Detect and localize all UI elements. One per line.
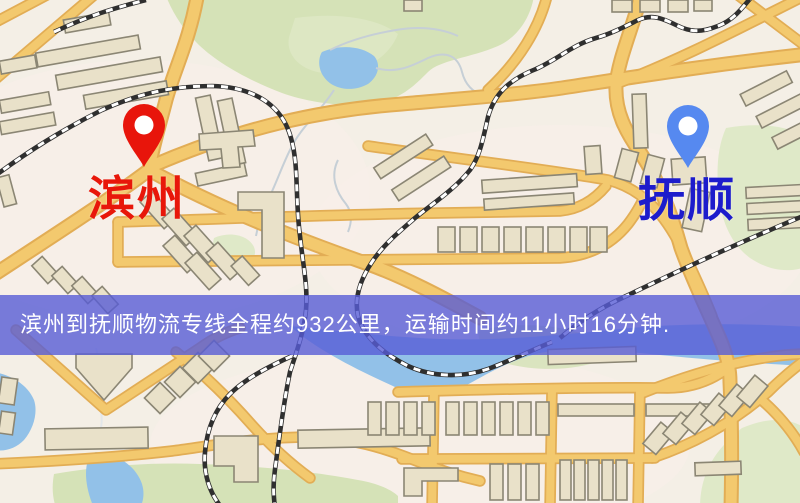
origin-city-label: 滨州 [88, 175, 186, 222]
origin-pin-icon[interactable] [120, 99, 168, 171]
destination-pin-hole [679, 117, 698, 136]
map-canvas[interactable]: 滨州 抚顺 滨州到抚顺物流专线全程约932公里，运输时间约11小时16分钟. [0, 0, 800, 503]
destination-pin-icon[interactable] [664, 100, 712, 172]
origin-pin-hole [135, 116, 154, 135]
origin-pin-body [123, 104, 165, 167]
destination-pin-body [667, 105, 709, 168]
destination-city-label: 抚顺 [638, 176, 736, 223]
route-info-text: 滨州到抚顺物流专线全程约932公里，运输时间约11小时16分钟. [20, 312, 670, 337]
base-map [0, 0, 800, 503]
route-info-banner: 滨州到抚顺物流专线全程约932公里，运输时间约11小时16分钟. [0, 295, 800, 355]
